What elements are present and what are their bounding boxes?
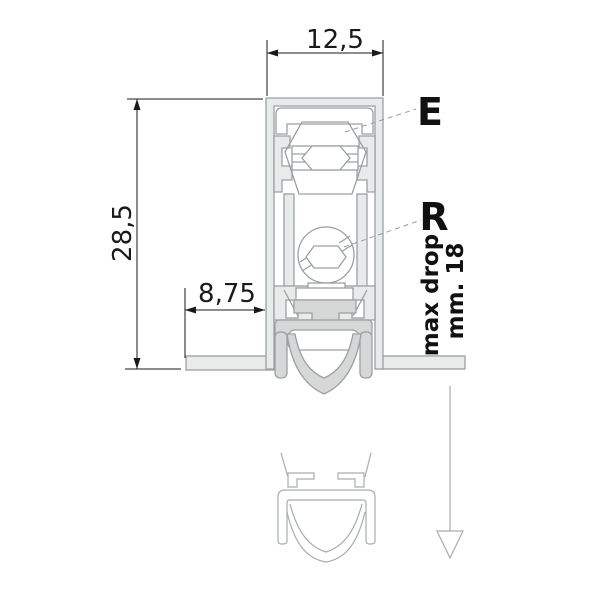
- gasket-curve-lower: [287, 512, 365, 562]
- part-label-e: E: [417, 90, 443, 134]
- dimension-value-left: 28,5: [108, 204, 138, 262]
- dimension-top-width: 12,5: [267, 25, 383, 96]
- max-drop-line1: max drop: [418, 234, 444, 356]
- carrier-fin-right: [360, 332, 372, 378]
- door-seal-technical-drawing: 12,5 28,5 8,75 E R max drop mm. 18: [0, 0, 600, 600]
- door-rebate-right: [376, 356, 465, 369]
- inner-step-right: [357, 136, 375, 192]
- gasket-curve-upper: [290, 504, 362, 552]
- channel-wall-left: [284, 194, 294, 288]
- door-rebate-left: [186, 356, 274, 370]
- dimension-inset-width: 8,75: [185, 279, 265, 358]
- arrow-down-icon: [437, 386, 463, 558]
- clip-hook-left: [288, 473, 314, 487]
- dimension-value-inset: 8,75: [198, 279, 256, 309]
- dimension-value-top: 12,5: [306, 25, 364, 55]
- clip-hook-right: [338, 473, 364, 487]
- gasket-carrier-outline: [278, 490, 375, 544]
- retracted-gasket-profile: [278, 453, 375, 562]
- top-slot: [276, 108, 373, 134]
- drawing-canvas: 12,5 28,5 8,75 E R max drop mm. 18: [0, 0, 600, 600]
- hex-socket-bottom: [306, 246, 346, 268]
- max-drop-annotation: max drop mm. 18: [418, 226, 469, 356]
- carrier-fin-left: [275, 332, 287, 378]
- max-drop-line2: mm. 18: [443, 243, 469, 340]
- hex-socket-top: [302, 146, 350, 170]
